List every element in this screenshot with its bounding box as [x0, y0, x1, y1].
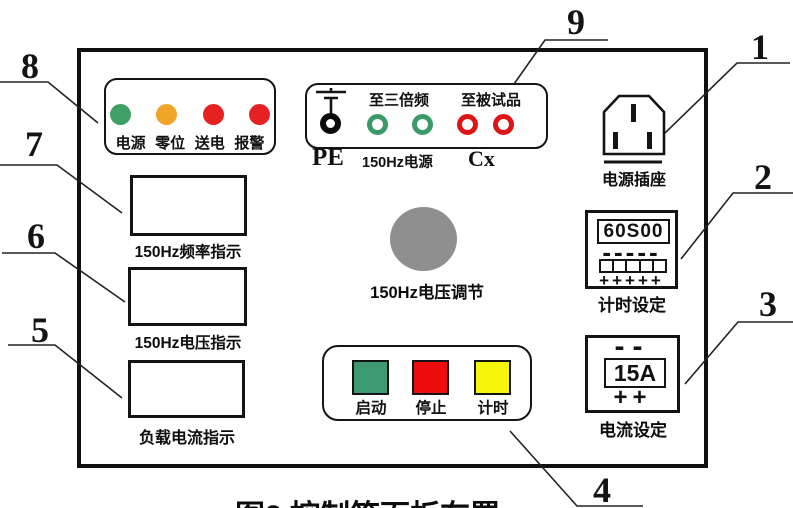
- pe-label: PE: [312, 144, 344, 172]
- stop-button-label: 停止: [408, 396, 454, 418]
- callout-number-5: 5: [22, 312, 58, 348]
- timing-button-square: [474, 360, 511, 395]
- voltage-adjust-knob: [390, 207, 457, 271]
- indicator-lights-panel: 电源 零位 送电 报警: [104, 78, 276, 155]
- 150hz-terminal-2: [412, 114, 433, 135]
- frequency-display: [130, 175, 247, 236]
- alarm-light-icon: [249, 104, 270, 125]
- zero-light-icon: [156, 104, 177, 125]
- pe-terminal: [320, 113, 341, 134]
- lights-row: [110, 104, 270, 125]
- earth-ground-icon: [313, 88, 349, 115]
- lights-labels: 电源 零位 送电 报警: [106, 132, 274, 153]
- load-current-display: [128, 360, 245, 418]
- energized-light-label: 送电: [195, 132, 225, 153]
- callout-number-3: 3: [750, 286, 786, 322]
- callout-number-9: 9: [558, 4, 594, 40]
- callout-number-1: 1: [742, 29, 778, 65]
- control-panel-diagram: 电源 零位 送电 报警 至三倍频 至被试品 PE 150Hz电源 Cx 电源插座…: [0, 0, 793, 508]
- test-object-group-label: 至被试品: [449, 89, 533, 110]
- voltage-display: [128, 267, 247, 326]
- timer-setting-label: 计时设定: [588, 291, 676, 316]
- cx-label: Cx: [468, 146, 495, 172]
- stop-button-square: [412, 360, 449, 395]
- alarm-light-label: 报警: [234, 132, 264, 153]
- 150hz-source-label: 150Hz电源: [362, 151, 433, 172]
- frequency-display-label: 150Hz频率指示: [122, 240, 254, 262]
- voltage-display-label: 150Hz电压指示: [122, 331, 254, 353]
- timing-button-label: 计时: [470, 396, 516, 418]
- figure-caption: 图2 控制箱面板布置: [235, 491, 615, 508]
- terminal-panel: 至三倍频 至被试品: [305, 83, 548, 149]
- callout-number-2: 2: [745, 159, 781, 195]
- power-socket-icon: [598, 92, 670, 168]
- zero-light-label: 零位: [155, 132, 185, 153]
- power-light-label: 电源: [116, 132, 146, 153]
- start-button-square: [352, 360, 389, 395]
- power-light-icon: [110, 104, 131, 125]
- callout-number-6: 6: [18, 218, 54, 254]
- power-socket-label: 电源插座: [588, 166, 680, 190]
- cx-terminal-1: [457, 114, 478, 135]
- load-current-display-label: 负载电流指示: [124, 424, 250, 448]
- timer-plus-row: +++++: [588, 271, 675, 291]
- energized-light-icon: [203, 104, 224, 125]
- current-plus-row: ++: [588, 384, 677, 412]
- start-button-label: 启动: [348, 396, 394, 418]
- button-panel: 启动 停止 计时: [322, 345, 532, 421]
- voltage-adjust-knob-label: 150Hz电压调节: [368, 279, 486, 303]
- 150hz-terminal-1: [367, 114, 388, 135]
- callout-number-7: 7: [16, 126, 52, 162]
- timer-setting-block: 60S00 ----- +++++: [585, 210, 678, 289]
- triple-freq-group-label: 至三倍频: [359, 89, 439, 110]
- cx-terminal-2: [493, 114, 514, 135]
- callout-number-8: 8: [12, 48, 48, 84]
- current-setting-block: -- 15A ++: [585, 335, 680, 413]
- current-setting-label: 电流设定: [589, 416, 677, 441]
